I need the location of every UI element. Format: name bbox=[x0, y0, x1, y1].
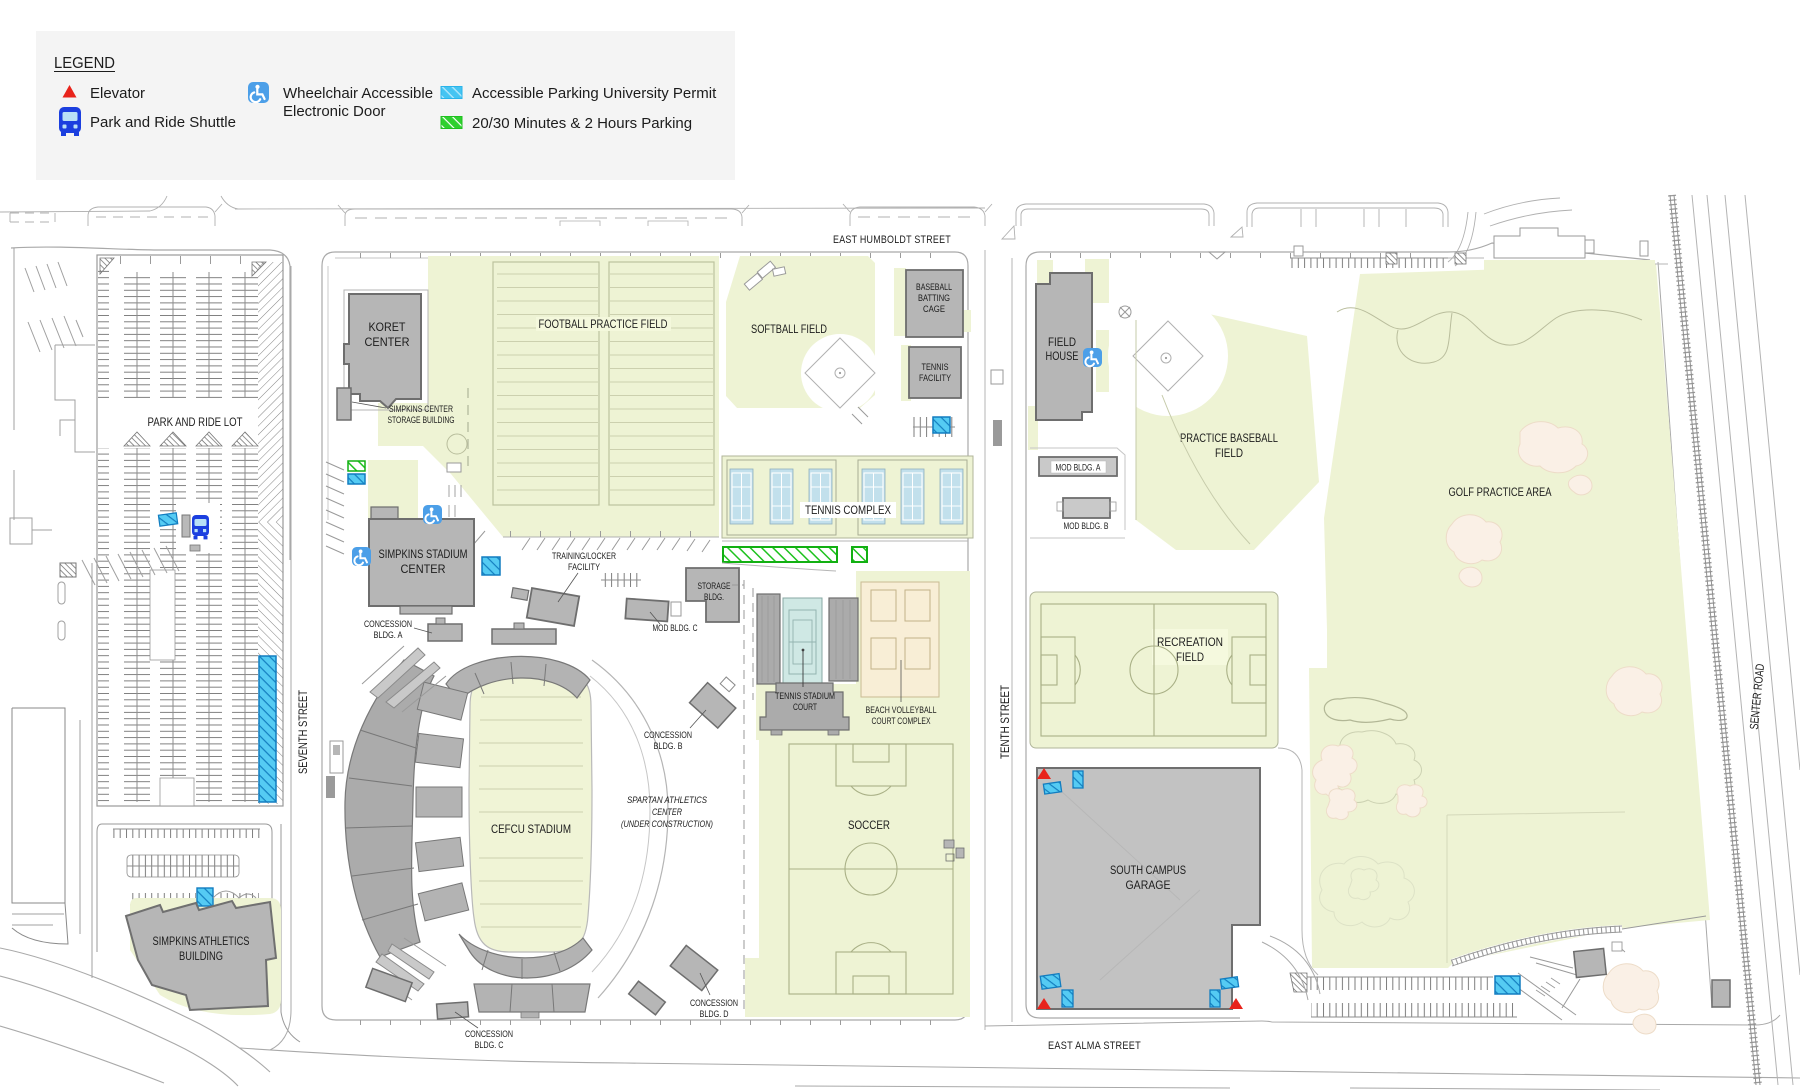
svg-text:CENTER: CENTER bbox=[652, 807, 682, 818]
svg-text:SIMPKINS CENTER: SIMPKINS CENTER bbox=[389, 404, 453, 415]
svg-text:GARAGE: GARAGE bbox=[1126, 878, 1171, 892]
svg-text:SIMPKINS ATHLETICS: SIMPKINS ATHLETICS bbox=[153, 934, 250, 948]
svg-text:(UNDER CONSTRUCTION): (UNDER CONSTRUCTION) bbox=[621, 819, 713, 830]
svg-text:LEGEND: LEGEND bbox=[54, 55, 115, 72]
svg-text:BEACH VOLLEYBALL: BEACH VOLLEYBALL bbox=[866, 705, 937, 716]
svg-text:BLDG. A: BLDG. A bbox=[374, 630, 404, 641]
svg-text:PRACTICE BASEBALL: PRACTICE BASEBALL bbox=[1180, 431, 1278, 445]
svg-text:BASEBALL: BASEBALL bbox=[916, 282, 952, 293]
svg-text:SPARTAN ATHLETICS: SPARTAN ATHLETICS bbox=[627, 795, 708, 806]
svg-text:PARK AND RIDE LOT: PARK AND RIDE LOT bbox=[148, 415, 244, 429]
svg-text:STORAGE BUILDING: STORAGE BUILDING bbox=[388, 415, 455, 426]
svg-text:Elevator: Elevator bbox=[90, 85, 145, 102]
svg-text:BATTING: BATTING bbox=[918, 293, 950, 304]
svg-text:SOCCER: SOCCER bbox=[848, 818, 890, 832]
svg-text:BLDG. C: BLDG. C bbox=[475, 1040, 504, 1051]
svg-text:KORET: KORET bbox=[369, 320, 407, 334]
svg-text:SOUTH CAMPUS: SOUTH CAMPUS bbox=[1110, 863, 1186, 877]
svg-text:TRAINING/LOCKER: TRAINING/LOCKER bbox=[552, 551, 616, 562]
svg-text:STORAGE: STORAGE bbox=[698, 581, 731, 592]
svg-text:FIELD: FIELD bbox=[1176, 650, 1204, 664]
svg-text:EAST ALMA STREET: EAST ALMA STREET bbox=[1048, 1040, 1141, 1052]
svg-text:GOLF PRACTICE AREA: GOLF PRACTICE AREA bbox=[1449, 485, 1552, 499]
svg-text:FACILITY: FACILITY bbox=[568, 562, 601, 573]
svg-text:COURT COMPLEX: COURT COMPLEX bbox=[872, 716, 931, 727]
svg-text:FIELD: FIELD bbox=[1215, 446, 1243, 460]
svg-text:CONCESSION: CONCESSION bbox=[690, 998, 738, 1009]
svg-text:FOOTBALL PRACTICE FIELD: FOOTBALL PRACTICE FIELD bbox=[539, 317, 668, 331]
svg-text:BLDG. B: BLDG. B bbox=[654, 741, 683, 752]
svg-text:MOD BLDG. B: MOD BLDG. B bbox=[1064, 521, 1109, 532]
svg-text:SEVENTH STREET: SEVENTH STREET bbox=[296, 689, 310, 774]
svg-text:TENNIS: TENNIS bbox=[922, 362, 949, 373]
svg-text:CONCESSION: CONCESSION bbox=[465, 1029, 513, 1040]
svg-text:BLDG. D: BLDG. D bbox=[700, 1009, 729, 1020]
svg-text:FIELD: FIELD bbox=[1048, 335, 1076, 349]
svg-text:TENNIS STADIUM: TENNIS STADIUM bbox=[775, 691, 835, 702]
svg-text:FACILITY: FACILITY bbox=[919, 373, 952, 384]
svg-text:BUILDING: BUILDING bbox=[179, 949, 223, 963]
svg-text:COURT: COURT bbox=[793, 702, 817, 713]
svg-text:20/30 Minutes & 2 Hours Parkin: 20/30 Minutes & 2 Hours Parking bbox=[472, 115, 692, 132]
svg-text:CEFCU STADIUM: CEFCU STADIUM bbox=[491, 822, 571, 836]
svg-text:Accessible Parking University: Accessible Parking University Permit bbox=[472, 85, 717, 102]
svg-text:TENTH STREET: TENTH STREET bbox=[998, 684, 1012, 759]
svg-text:CAGE: CAGE bbox=[923, 304, 945, 315]
svg-text:CONCESSION: CONCESSION bbox=[364, 619, 412, 630]
svg-text:CENTER: CENTER bbox=[365, 335, 410, 349]
svg-text:CENTER: CENTER bbox=[401, 562, 446, 576]
svg-text:BLDG.: BLDG. bbox=[704, 592, 724, 603]
svg-text:CONCESSION: CONCESSION bbox=[644, 730, 692, 741]
svg-text:RECREATION: RECREATION bbox=[1157, 635, 1223, 649]
svg-text:SIMPKINS STADIUM: SIMPKINS STADIUM bbox=[379, 547, 468, 561]
svg-text:HOUSE: HOUSE bbox=[1046, 349, 1079, 363]
svg-text:MOD BLDG. A: MOD BLDG. A bbox=[1056, 463, 1101, 474]
svg-text:Electronic Door: Electronic Door bbox=[283, 103, 386, 120]
svg-text:Park and Ride Shuttle: Park and Ride Shuttle bbox=[90, 114, 236, 131]
svg-text:EAST HUMBOLDT STREET: EAST HUMBOLDT STREET bbox=[833, 234, 951, 246]
svg-text:TENNIS COMPLEX: TENNIS COMPLEX bbox=[805, 503, 891, 517]
svg-text:SOFTBALL FIELD: SOFTBALL FIELD bbox=[751, 322, 827, 336]
svg-text:Wheelchair Accessible: Wheelchair Accessible bbox=[283, 85, 433, 102]
svg-text:MOD BLDG. C: MOD BLDG. C bbox=[653, 623, 698, 634]
